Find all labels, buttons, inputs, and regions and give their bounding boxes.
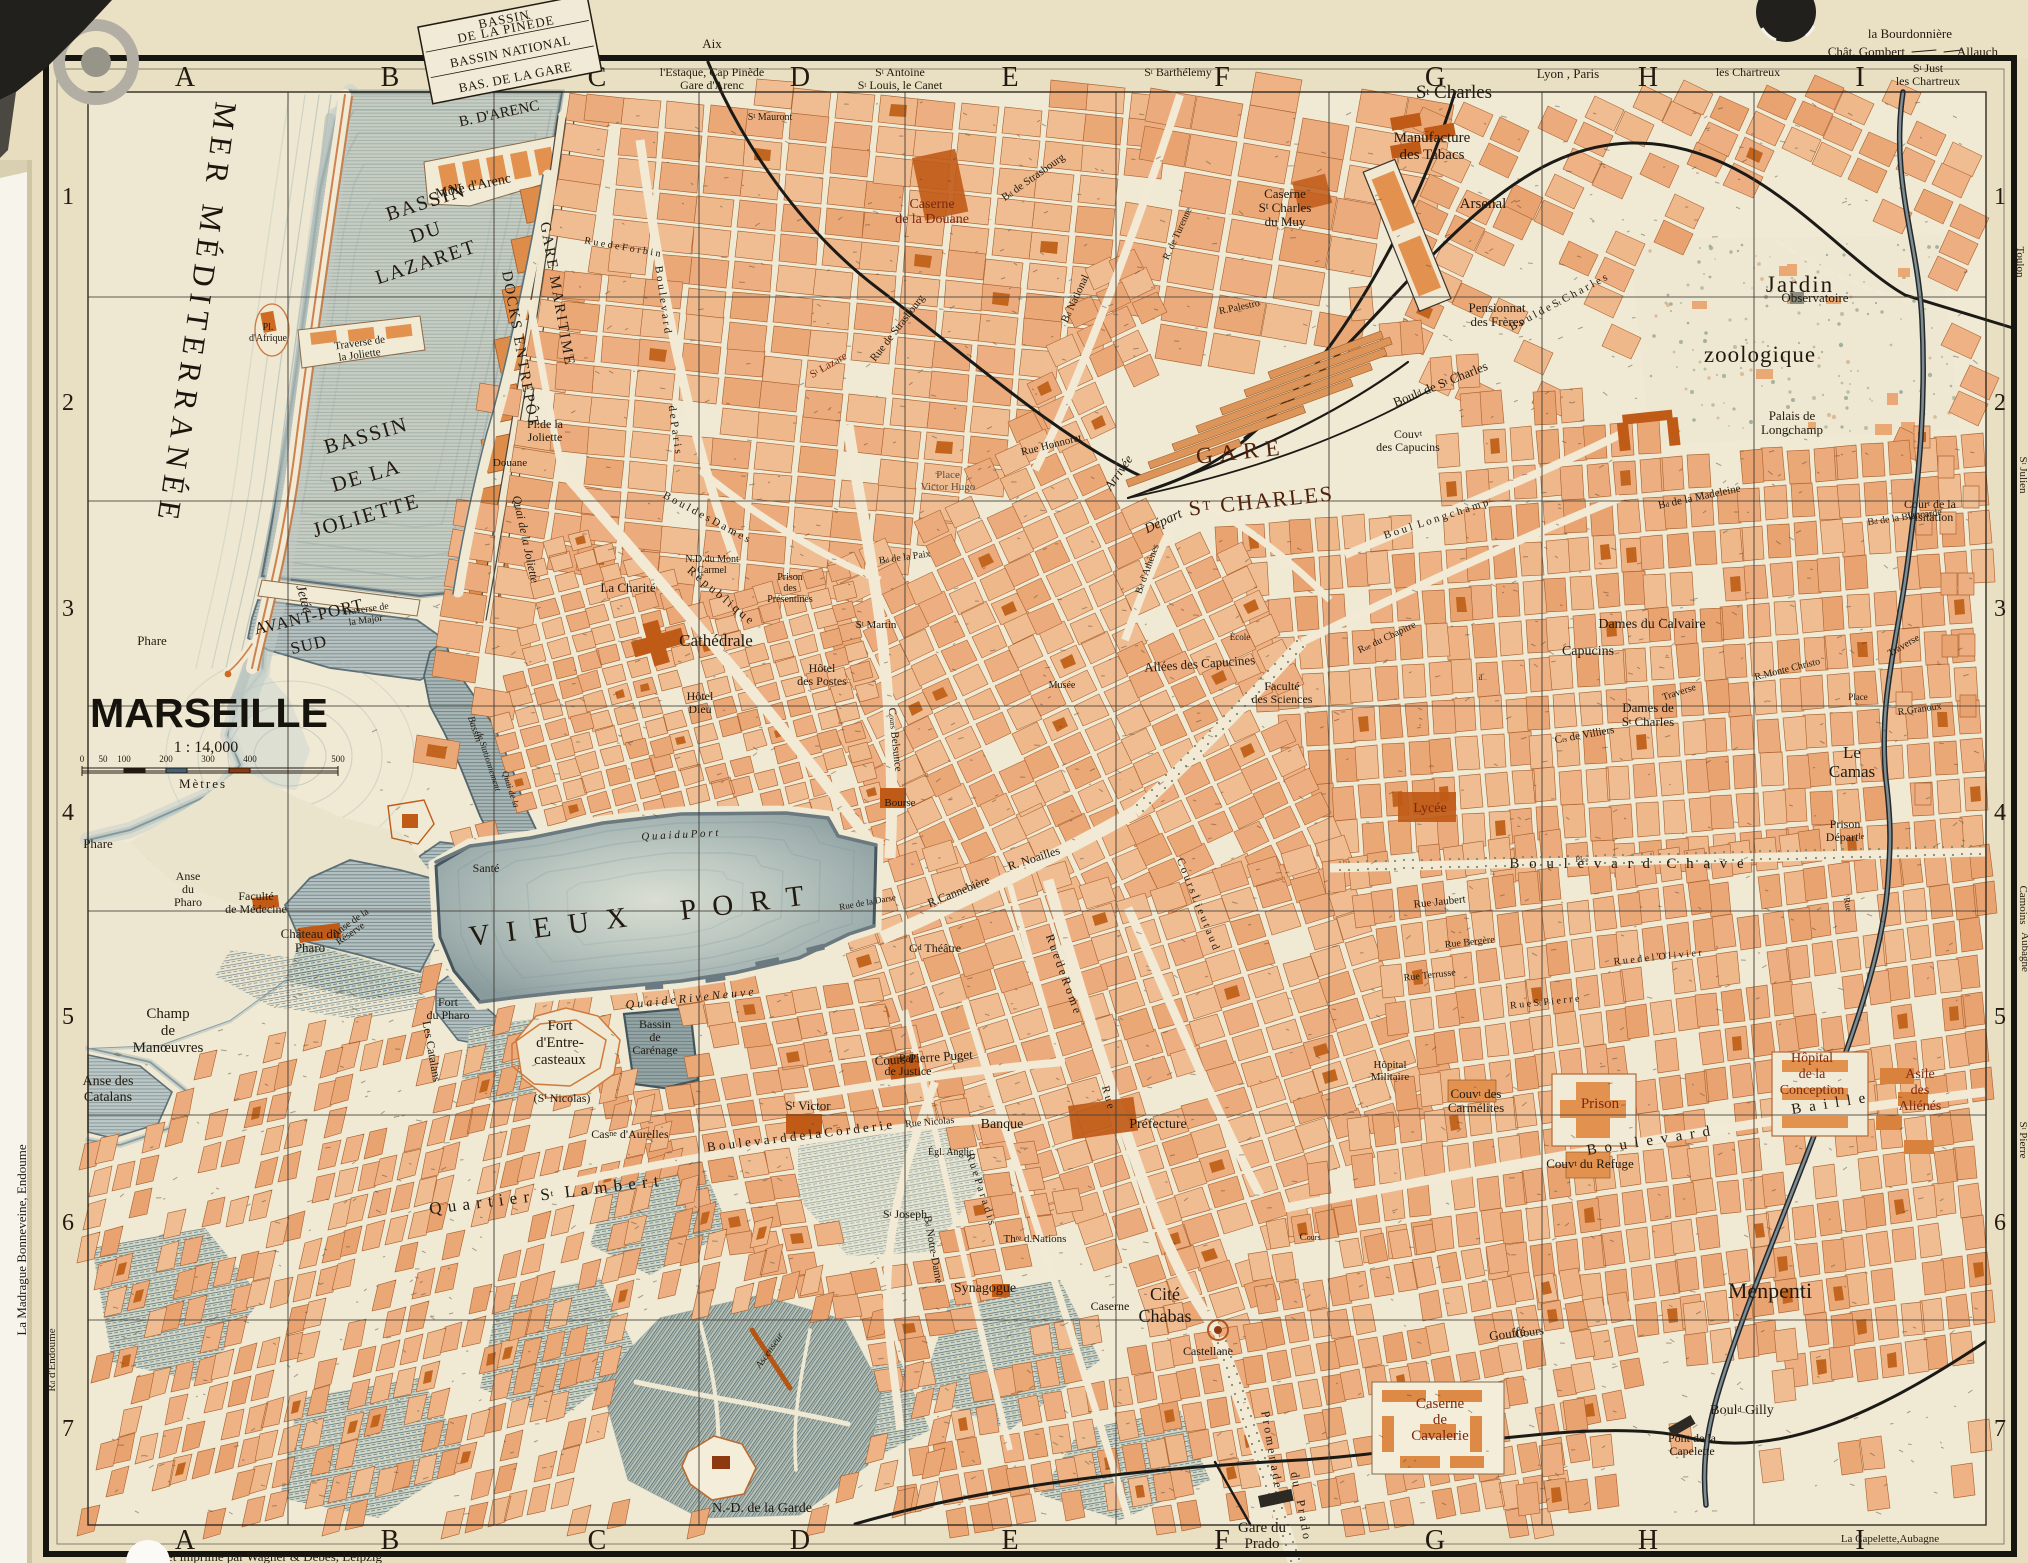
svg-text:H: H bbox=[1638, 1525, 1658, 1556]
svg-text:Fort: Fort bbox=[547, 1018, 573, 1034]
svg-text:Joliette: Joliette bbox=[528, 430, 563, 444]
svg-text:MARSEILLE: MARSEILLE bbox=[90, 690, 328, 736]
svg-text:Camoins: Camoins bbox=[2017, 885, 2028, 924]
svg-text:Thre d.Nations: Thre d.Nations bbox=[1004, 1233, 1067, 1245]
svg-text:du: du bbox=[182, 882, 194, 896]
svg-text:Pont de la: Pont de la bbox=[1668, 1431, 1717, 1445]
svg-text:Manufacture: Manufacture bbox=[1394, 130, 1471, 146]
svg-text:Castellane: Castellane bbox=[1183, 1344, 1233, 1358]
svg-text:Champ: Champ bbox=[146, 1006, 189, 1022]
svg-text:Lycée: Lycée bbox=[1413, 801, 1446, 816]
svg-text:1: 1 bbox=[62, 184, 74, 210]
svg-text:Pl.: Pl. bbox=[263, 322, 274, 333]
svg-text:La Charité: La Charité bbox=[600, 580, 655, 595]
svg-text:A: A bbox=[175, 62, 196, 93]
svg-text:Dames du Calvaire: Dames du Calvaire bbox=[1598, 617, 1705, 632]
svg-text:Victor Hugo: Victor Hugo bbox=[921, 481, 976, 493]
svg-text:F: F bbox=[1214, 1525, 1230, 1556]
svg-text:2: 2 bbox=[62, 390, 74, 416]
svg-text:Hôpital: Hôpital bbox=[1374, 1059, 1407, 1071]
svg-text:les Chartreux: les Chartreux bbox=[1896, 74, 1960, 88]
svg-text:Hôtel: Hôtel bbox=[687, 689, 714, 703]
svg-text:B: B bbox=[381, 1525, 400, 1556]
svg-text:Palais de: Palais de bbox=[1769, 408, 1816, 423]
svg-text:de: de bbox=[1433, 1412, 1448, 1428]
svg-text:du Muy: du Muy bbox=[1265, 214, 1306, 229]
svg-text:500: 500 bbox=[331, 754, 345, 764]
svg-text:Militaire: Militaire bbox=[1371, 1071, 1410, 1083]
svg-text:Catalans: Catalans bbox=[84, 1090, 132, 1105]
svg-text:Pharo: Pharo bbox=[295, 940, 325, 955]
svg-text:d'Afrique: d'Afrique bbox=[249, 333, 287, 344]
svg-text:d u: d u bbox=[1288, 1471, 1304, 1488]
svg-text:Douane: Douane bbox=[493, 457, 527, 469]
svg-text:Caserne: Caserne bbox=[1416, 1396, 1465, 1412]
svg-text:Caserne: Caserne bbox=[909, 197, 954, 212]
svg-text:Place: Place bbox=[936, 469, 960, 481]
svg-text:La Capelette,Aubagne: La Capelette,Aubagne bbox=[1841, 1533, 1939, 1545]
svg-text:des: des bbox=[1911, 1083, 1930, 1098]
svg-text:Chât. Gombert: Chât. Gombert bbox=[1828, 44, 1906, 59]
svg-text:Phare: Phare bbox=[137, 633, 167, 648]
svg-text:des Tabacs: des Tabacs bbox=[1400, 147, 1465, 163]
svg-text:Capelette: Capelette bbox=[1669, 1444, 1714, 1458]
svg-text:Pharo: Pharo bbox=[174, 895, 202, 909]
svg-text:Chabas: Chabas bbox=[1139, 1306, 1192, 1326]
svg-text:Pal.: Pal. bbox=[899, 1051, 917, 1065]
svg-text:des Sciences: des Sciences bbox=[1252, 692, 1313, 706]
svg-text:de: de bbox=[161, 1023, 176, 1039]
svg-text:d'Entre-: d'Entre- bbox=[536, 1035, 584, 1051]
svg-text:Gare d'Arenc: Gare d'Arenc bbox=[680, 78, 744, 92]
svg-text:St Just: St Just bbox=[1913, 61, 1944, 75]
svg-text:Fort: Fort bbox=[438, 995, 459, 1009]
svg-text:5: 5 bbox=[62, 1004, 74, 1030]
svg-text:de Médecine: de Médecine bbox=[225, 902, 287, 916]
svg-text:Place: Place bbox=[1848, 692, 1868, 702]
svg-text:Anse: Anse bbox=[176, 869, 201, 883]
svg-text:Carmel: Carmel bbox=[697, 565, 727, 576]
svg-text:Le: Le bbox=[1843, 743, 1861, 762]
svg-text:de Justice: de Justice bbox=[885, 1064, 932, 1078]
svg-text:Égl. Anglic.: Égl. Anglic. bbox=[928, 1146, 976, 1158]
svg-text:D: D bbox=[790, 62, 810, 93]
svg-text:de: de bbox=[649, 1030, 660, 1044]
svg-text:des Postes: des Postes bbox=[797, 674, 847, 688]
svg-text:Longchamp: Longchamp bbox=[1761, 422, 1823, 437]
svg-text:Couvt du Refuge: Couvt du Refuge bbox=[1546, 1156, 1634, 1171]
svg-text:zoologique: zoologique bbox=[1704, 342, 1816, 367]
svg-text:St Barthélemy: St Barthélemy bbox=[1144, 65, 1212, 79]
svg-text:Château du: Château du bbox=[281, 926, 340, 941]
svg-text:St Pierre: St Pierre bbox=[2017, 1121, 2028, 1158]
svg-text:Arsenal: Arsenal bbox=[1460, 196, 1507, 212]
svg-text:I: I bbox=[1855, 62, 1864, 93]
svg-text:St Joseph: St Joseph bbox=[883, 1207, 927, 1221]
svg-text:les Chartreux: les Chartreux bbox=[1716, 65, 1780, 79]
svg-text:Faculté: Faculté bbox=[1264, 679, 1299, 693]
svg-text:Prison: Prison bbox=[1581, 1096, 1620, 1112]
svg-text:0: 0 bbox=[80, 754, 85, 764]
svg-text:Dieu: Dieu bbox=[688, 702, 711, 716]
svg-text:St Mauront: St Mauront bbox=[748, 112, 793, 123]
svg-text:Hôpital: Hôpital bbox=[1791, 1051, 1833, 1066]
svg-text:(St Nicolas): (St Nicolas) bbox=[534, 1091, 591, 1105]
svg-text:Banque: Banque bbox=[981, 1117, 1024, 1132]
svg-text:1: 1 bbox=[1994, 184, 2006, 210]
svg-text:400: 400 bbox=[243, 754, 257, 764]
svg-text:l'Estaque, Cap Pinède: l'Estaque, Cap Pinède bbox=[660, 65, 764, 79]
svg-text:Gare du: Gare du bbox=[1238, 1520, 1286, 1536]
svg-text:Couvt des: Couvt des bbox=[1451, 1086, 1502, 1101]
svg-text:2: 2 bbox=[1994, 390, 2006, 416]
svg-text:Prison: Prison bbox=[1830, 817, 1861, 831]
svg-text:Plce: Plce bbox=[1576, 855, 1589, 864]
svg-text:Caserne: Caserne bbox=[1091, 1299, 1130, 1313]
svg-text:D: D bbox=[790, 1525, 810, 1556]
svg-text:50: 50 bbox=[99, 754, 109, 764]
svg-text:7: 7 bbox=[62, 1416, 74, 1442]
svg-text:Cours: Cours bbox=[1299, 1231, 1320, 1243]
svg-text:Couvt: Couvt bbox=[1394, 427, 1423, 441]
svg-text:Manœuvres: Manœuvres bbox=[133, 1040, 204, 1056]
svg-text:Cité: Cité bbox=[1150, 1284, 1180, 1304]
svg-text:Bassin: Bassin bbox=[639, 1017, 671, 1031]
svg-text:Carénage: Carénage bbox=[632, 1043, 677, 1057]
svg-text:Observatoire: Observatoire bbox=[1781, 290, 1848, 305]
svg-text:Préfecture: Préfecture bbox=[1129, 1117, 1187, 1132]
svg-text:C: C bbox=[588, 1525, 607, 1556]
svg-text:H: H bbox=[1638, 62, 1658, 93]
svg-text:Visitation: Visitation bbox=[1907, 510, 1954, 524]
svg-text:B o u l e v a r d C h a v e: B o u l e v a r d C h a v e bbox=[1509, 856, 1746, 872]
svg-text:Aix: Aix bbox=[702, 36, 722, 51]
svg-text:Carmélites: Carmélites bbox=[1448, 1100, 1504, 1115]
svg-text:N.D.du Mont: N.D.du Mont bbox=[685, 554, 739, 565]
svg-text:Aliénés: Aliénés bbox=[1899, 1099, 1942, 1114]
svg-text:du Pharo: du Pharo bbox=[427, 1008, 470, 1022]
svg-text:N.-D. de la Garde: N.-D. de la Garde bbox=[712, 1501, 812, 1516]
svg-text:F: F bbox=[1214, 62, 1230, 93]
svg-text:Mètres: Mètres bbox=[179, 776, 227, 791]
svg-text:Asile: Asile bbox=[1905, 1067, 1935, 1082]
svg-text:Cavalerie: Cavalerie bbox=[1411, 1428, 1469, 1444]
svg-text:Bould Gilly: Bould Gilly bbox=[1710, 1403, 1774, 1418]
svg-text:Faculté: Faculté bbox=[238, 889, 273, 903]
svg-text:la Bourdonnière: la Bourdonnière bbox=[1868, 26, 1952, 41]
svg-text:G: G bbox=[1425, 1525, 1445, 1556]
svg-text:300: 300 bbox=[201, 754, 215, 764]
svg-text:Bourse: Bourse bbox=[884, 797, 915, 809]
svg-text:3: 3 bbox=[1994, 596, 2006, 622]
svg-text:Synagogue: Synagogue bbox=[954, 1281, 1016, 1296]
svg-text:Gd Théâtre: Gd Théâtre bbox=[909, 941, 961, 955]
svg-text:4: 4 bbox=[62, 800, 74, 826]
svg-text:4: 4 bbox=[1994, 800, 2006, 826]
svg-text:3: 3 bbox=[62, 596, 74, 622]
svg-text:Capucins: Capucins bbox=[1562, 644, 1614, 659]
svg-text:Menpenti: Menpenti bbox=[1728, 1278, 1812, 1303]
svg-text:de la: de la bbox=[1799, 1067, 1827, 1082]
svg-text:Cathédrale: Cathédrale bbox=[679, 631, 753, 650]
svg-text:Lyon , Paris: Lyon , Paris bbox=[1537, 66, 1599, 81]
svg-text:Camas: Camas bbox=[1829, 762, 1875, 781]
svg-text:Casne d'Aurelles: Casne d'Aurelles bbox=[591, 1127, 669, 1141]
svg-text:Aubagne: Aubagne bbox=[2019, 932, 2028, 972]
svg-text:B: B bbox=[381, 62, 400, 93]
svg-text:200: 200 bbox=[159, 754, 173, 764]
svg-text:Anse des: Anse des bbox=[83, 1074, 134, 1089]
svg-text:Présentines: Présentines bbox=[767, 594, 813, 605]
svg-text:Toulon: Toulon bbox=[2014, 246, 2026, 278]
svg-text:de la Douane: de la Douane bbox=[895, 212, 969, 227]
svg-text:Hôtel: Hôtel bbox=[809, 661, 836, 675]
svg-text:Musée: Musée bbox=[1049, 680, 1076, 691]
svg-text:des Capucins: des Capucins bbox=[1376, 440, 1440, 454]
svg-text:100: 100 bbox=[117, 754, 131, 764]
svg-text:Court de la: Court de la bbox=[1904, 497, 1957, 511]
svg-text:5: 5 bbox=[1994, 1004, 2006, 1030]
svg-text:6: 6 bbox=[62, 1210, 74, 1236]
svg-text:La Madrague Bonneveine, Endoum: La Madrague Bonneveine, Endoume bbox=[14, 1144, 29, 1336]
svg-text:casteaux: casteaux bbox=[534, 1052, 586, 1068]
svg-text:St Julien: St Julien bbox=[2017, 456, 2028, 494]
svg-text:6: 6 bbox=[1994, 1210, 2006, 1236]
svg-text:des: des bbox=[783, 583, 796, 594]
svg-text:École: École bbox=[1230, 632, 1251, 642]
svg-text:E: E bbox=[1001, 62, 1018, 93]
svg-text:Pensionnat: Pensionnat bbox=[1468, 300, 1525, 315]
svg-text:E: E bbox=[1001, 1525, 1018, 1556]
svg-text:Prison: Prison bbox=[777, 572, 803, 583]
svg-text:Allauch: Allauch bbox=[1957, 44, 1999, 59]
svg-text:Conception: Conception bbox=[1780, 1083, 1845, 1098]
svg-text:Phare: Phare bbox=[83, 836, 113, 851]
svg-text:St Victor: St Victor bbox=[785, 1098, 831, 1113]
svg-text:Hôtel des Postes: Hôtel des Postes bbox=[845, 679, 852, 681]
svg-text:Caserne: Caserne bbox=[988, 219, 992, 221]
svg-text:Santé: Santé bbox=[473, 861, 500, 875]
svg-text:Prado: Prado bbox=[1245, 1536, 1280, 1552]
svg-text:7: 7 bbox=[1994, 1416, 2006, 1442]
svg-text:Caserne: Caserne bbox=[1264, 186, 1306, 201]
svg-text:St Louis, le Canet: St Louis, le Canet bbox=[858, 78, 943, 92]
